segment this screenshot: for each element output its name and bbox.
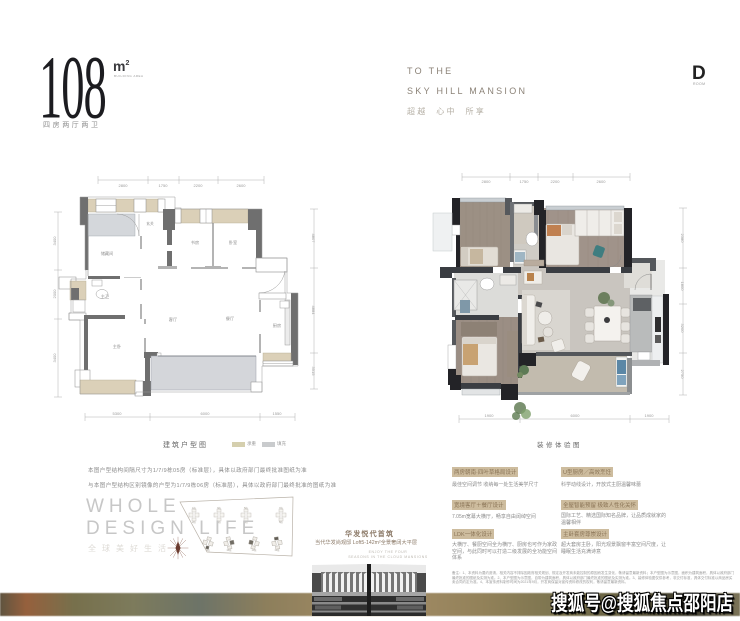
svg-text:1550: 1550 — [273, 411, 283, 416]
svg-text:10栋: 10栋 — [226, 548, 232, 552]
svg-text:2600: 2600 — [237, 183, 247, 188]
svg-text:2800: 2800 — [119, 183, 129, 188]
svg-text:2800: 2800 — [482, 179, 492, 184]
svg-text:2200: 2200 — [194, 183, 204, 188]
svg-text:7栋: 7栋 — [279, 506, 283, 510]
svg-text:2380: 2380 — [680, 234, 685, 244]
svg-text:8栋: 8栋 — [279, 520, 283, 524]
svg-text:11栋: 11栋 — [251, 548, 257, 552]
svg-text:1750: 1750 — [520, 179, 530, 184]
svg-text:2200: 2200 — [551, 179, 561, 184]
svg-text:1900: 1900 — [485, 413, 495, 418]
svg-text:1900: 1900 — [645, 413, 655, 418]
svg-text:餐厅: 餐厅 — [226, 315, 234, 322]
svg-text:3400: 3400 — [52, 236, 57, 246]
svg-text:主卧: 主卧 — [113, 343, 121, 350]
svg-text:玄关: 玄关 — [146, 221, 154, 226]
svg-text:9栋: 9栋 — [206, 548, 210, 552]
svg-text:2750: 2750 — [680, 370, 685, 380]
svg-text:书房: 书房 — [191, 239, 199, 246]
svg-text:4884: 4884 — [311, 306, 316, 316]
svg-text:2600: 2600 — [597, 179, 607, 184]
svg-text:1750: 1750 — [159, 183, 169, 188]
svg-text:12栋: 12栋 — [274, 548, 280, 552]
svg-text:厨房: 厨房 — [273, 322, 281, 329]
svg-text:6000: 6000 — [201, 411, 211, 416]
svg-text:3515: 3515 — [311, 367, 316, 377]
svg-text:主卫: 主卫 — [101, 293, 109, 299]
svg-text:4807: 4807 — [311, 234, 316, 244]
svg-text:5300: 5300 — [113, 411, 123, 416]
svg-text:1800: 1800 — [680, 282, 685, 292]
svg-text:卧室: 卧室 — [229, 239, 237, 246]
svg-text:客厅: 客厅 — [169, 316, 177, 323]
svg-text:3200: 3200 — [680, 324, 685, 334]
svg-text:6000: 6000 — [571, 413, 581, 418]
svg-text:储藏间: 储藏间 — [101, 250, 114, 257]
svg-text:2000: 2000 — [52, 289, 57, 299]
svg-text:3400: 3400 — [52, 353, 57, 363]
